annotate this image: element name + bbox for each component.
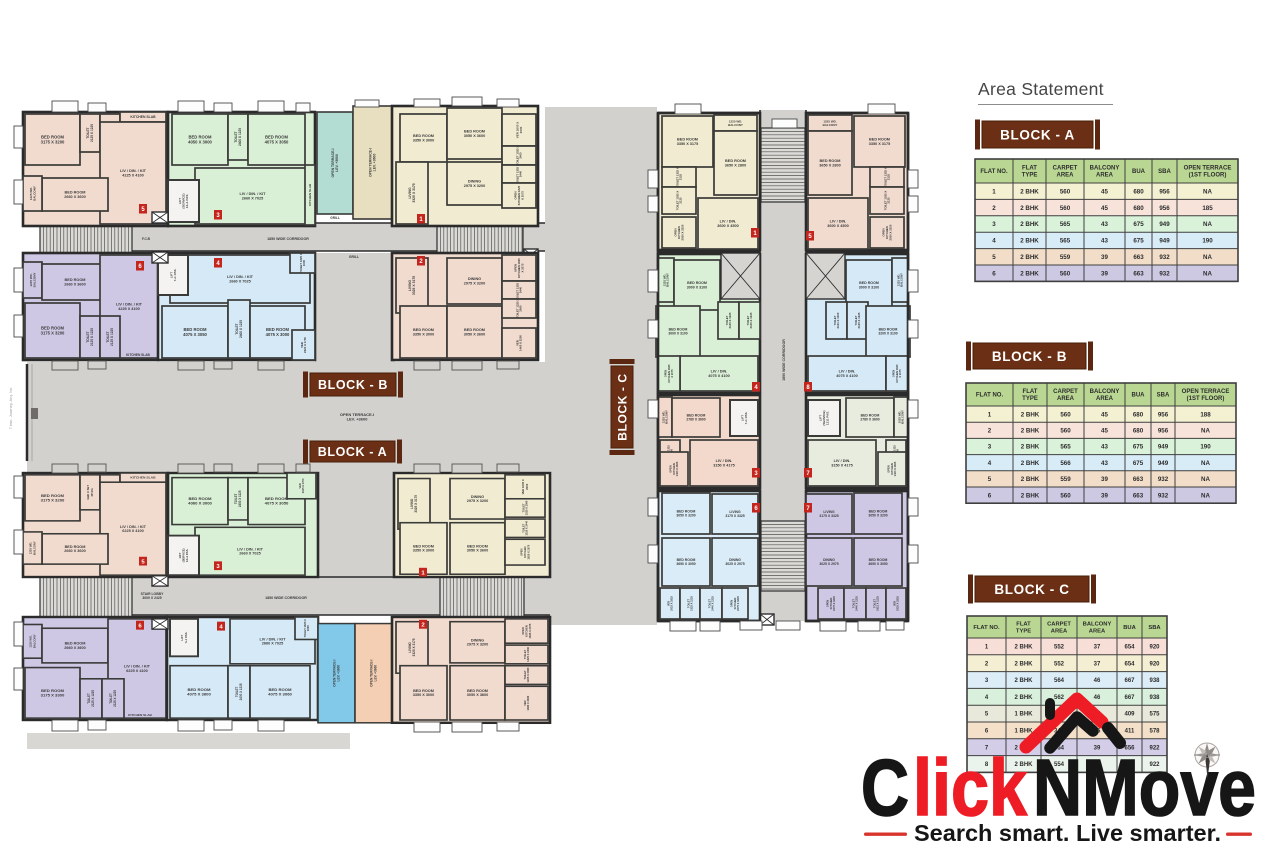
svg-text:6225 X 4100: 6225 X 4100	[122, 529, 143, 533]
svg-text:GRILL: GRILL	[349, 255, 359, 259]
svg-text:KITCHEN SLAB: KITCHEN SLAB	[128, 713, 152, 717]
svg-text:2 BHK: 2 BHK	[1020, 221, 1039, 228]
svg-text:654: 654	[1124, 645, 1135, 651]
svg-text:BALCONY: BALCONY	[1090, 389, 1120, 395]
svg-text:3150 X 4175: 3150 X 4175	[713, 464, 735, 468]
svg-text:BALCONY: BALCONY	[728, 123, 743, 127]
svg-text:1460 X 2825: 1460 X 2825	[675, 461, 679, 476]
svg-text:2660 X 7025: 2660 X 7025	[239, 552, 260, 556]
svg-text:6: 6	[992, 270, 996, 277]
svg-text:NA: NA	[1201, 492, 1210, 499]
svg-text:BED ROOM: BED ROOM	[464, 130, 485, 134]
svg-text:TYPE: TYPE	[1022, 173, 1038, 179]
svg-text:2400 X 1225: 2400 X 1225	[239, 320, 243, 338]
svg-text:578: 578	[1149, 729, 1160, 735]
svg-text:SBA: SBA	[1157, 393, 1170, 399]
svg-text:3200 X 3100: 3200 X 3100	[878, 332, 897, 336]
svg-text:45: 45	[1101, 411, 1108, 418]
svg-text:1: 1	[992, 188, 996, 195]
svg-text:4075 X 4100: 4075 X 4100	[836, 374, 858, 378]
svg-text:4060 X 3000: 4060 X 3000	[188, 501, 212, 506]
svg-text:680: 680	[1133, 205, 1144, 212]
svg-text:OPEN TERRACE: OPEN TERRACE	[1184, 166, 1232, 172]
svg-text:BED ROOM: BED ROOM	[65, 191, 86, 195]
svg-text:NA: NA	[1201, 476, 1210, 483]
svg-text:663: 663	[1133, 270, 1144, 277]
svg-text:3325 X 3175: 3325 X 3175	[412, 638, 416, 656]
svg-text:5: 5	[992, 254, 996, 261]
svg-text:BLOCK - A: BLOCK - A	[318, 445, 388, 459]
svg-text:560: 560	[1060, 492, 1071, 499]
svg-text:560: 560	[1060, 270, 1071, 277]
svg-text:938: 938	[1149, 678, 1160, 684]
svg-text:1325 X 2060: 1325 X 2060	[525, 500, 529, 515]
svg-text:LIV / DIN. / KIT: LIV / DIN. / KIT	[227, 275, 254, 279]
svg-text:2660 X 3600: 2660 X 3600	[64, 283, 86, 287]
svg-text:956: 956	[1158, 428, 1169, 435]
svg-text:BED ROOM: BED ROOM	[820, 159, 841, 163]
svg-text:5: 5	[988, 476, 992, 483]
svg-text:LEV. +3600: LEV. +3600	[374, 665, 378, 682]
svg-text:2440: 2440	[519, 170, 523, 177]
svg-text:3350 X 3000: 3350 X 3000	[413, 693, 435, 697]
svg-text:3350 X 3000: 3350 X 3000	[413, 139, 435, 143]
svg-text:FLAT NO.: FLAT NO.	[973, 625, 1000, 631]
svg-text:409: 409	[1124, 712, 1135, 718]
svg-text:2780 X 3600: 2780 X 3600	[686, 418, 705, 422]
svg-text:2125: 2125	[887, 173, 891, 180]
svg-text:2 BHK: 2 BHK	[1014, 695, 1033, 701]
svg-text:OPEN TERRACE: OPEN TERRACE	[1182, 389, 1230, 395]
svg-text:2125 X 1225: 2125 X 1225	[728, 312, 732, 328]
svg-text:lick: lick	[913, 743, 1027, 832]
svg-text:2 BHK: 2 BHK	[1021, 428, 1040, 435]
svg-text:3150 X 4175: 3150 X 4175	[831, 464, 853, 468]
svg-text:560: 560	[1060, 188, 1071, 195]
svg-text:BALCONY: BALCONY	[666, 273, 670, 287]
svg-text:552: 552	[1054, 645, 1065, 651]
svg-text:6: 6	[988, 492, 992, 499]
svg-text:2660 X 3600: 2660 X 3600	[64, 195, 86, 199]
svg-text:2 BHK: 2 BHK	[1020, 205, 1039, 212]
svg-text:LIV / DIN. / KIT: LIV / DIN. / KIT	[120, 169, 147, 173]
svg-text:2050 X 2250: 2050 X 2250	[888, 224, 892, 240]
svg-text:2125: 2125	[679, 173, 683, 180]
svg-text:3175 X 3300: 3175 X 3300	[41, 693, 65, 698]
svg-text:7+1 PAS.: 7+1 PAS.	[184, 632, 188, 644]
svg-text:956: 956	[1159, 205, 1170, 212]
svg-text:956: 956	[1159, 188, 1170, 195]
svg-text:667: 667	[1124, 695, 1135, 701]
svg-text:4075 X 3000: 4075 X 3000	[266, 332, 290, 337]
svg-text:3: 3	[992, 221, 996, 228]
svg-text:BALCONY: BALCONY	[900, 273, 904, 287]
svg-text:1225 X 2060: 1225 X 2060	[526, 667, 530, 682]
svg-text:FLAT NO.: FLAT NO.	[976, 393, 1004, 399]
svg-text:3600 X 4500: 3600 X 4500	[827, 224, 849, 228]
svg-text:2660 X 7025: 2660 X 7025	[262, 642, 284, 646]
svg-text:Search smart. Live smarter.: Search smart. Live smarter.	[914, 820, 1221, 846]
svg-text:BUA: BUA	[1132, 393, 1146, 399]
svg-text:1850 WIDE CORRIDOOR: 1850 WIDE CORRIDOOR	[265, 596, 307, 600]
svg-text:1325 X 2440: 1325 X 2440	[526, 647, 530, 662]
svg-text:LIV / DIN.: LIV / DIN.	[720, 220, 737, 224]
svg-text:BLOCK - B: BLOCK - B	[992, 349, 1067, 364]
svg-text:4075 X 3050: 4075 X 3050	[183, 332, 207, 337]
svg-text:2125 X 1225: 2125 X 1225	[110, 328, 114, 346]
svg-text:3050 X 3600: 3050 X 3600	[467, 693, 489, 697]
svg-text:3000 X 3100: 3000 X 3100	[859, 285, 879, 289]
svg-text:2660 X 7025: 2660 X 7025	[242, 197, 264, 201]
svg-text:LEV. +3600: LEV. +3600	[337, 665, 341, 682]
svg-text:2050 X 2250: 2050 X 2250	[680, 224, 684, 240]
svg-text:2400: 2400	[519, 152, 523, 159]
svg-text:TYPE: TYPE	[1016, 628, 1031, 634]
svg-text:3050 X 3200: 3050 X 3200	[676, 514, 695, 518]
svg-text:NA: NA	[1203, 221, 1212, 228]
svg-text:949: 949	[1159, 238, 1170, 245]
svg-text:949: 949	[1158, 460, 1169, 467]
svg-text:2 BHK: 2 BHK	[1021, 460, 1040, 467]
svg-text:BALCONY: BALCONY	[32, 186, 36, 201]
svg-text:2125: 2125	[679, 197, 683, 204]
svg-text:46: 46	[1094, 695, 1101, 701]
svg-text:CARPET: CARPET	[1053, 389, 1078, 395]
svg-text:2 BHK: 2 BHK	[1021, 444, 1040, 451]
svg-text:KITCHEN SLAB: KITCHEN SLAB	[130, 115, 156, 119]
svg-text:AREA: AREA	[1096, 396, 1114, 402]
svg-text:NA: NA	[1203, 254, 1212, 261]
svg-text:1625 X 2575: 1625 X 2575	[526, 544, 530, 559]
svg-text:2125: 2125	[887, 197, 891, 204]
svg-text:2125 X 1225: 2125 X 1225	[90, 328, 94, 346]
svg-text:3050 X 3600: 3050 X 3600	[464, 134, 486, 138]
svg-text:2025 X 1700: 2025 X 1700	[301, 478, 305, 493]
svg-text:2025 X 1825: 2025 X 1825	[670, 596, 674, 611]
svg-text:4225 X 4100: 4225 X 4100	[122, 174, 144, 178]
svg-text:2975 X 3200: 2975 X 3200	[464, 282, 486, 286]
svg-text:4075 X 3050: 4075 X 3050	[265, 501, 289, 506]
svg-text:BUA: BUA	[1123, 625, 1136, 631]
svg-text:3000 X 3100: 3000 X 3100	[668, 332, 687, 336]
svg-text:2400 X 1225: 2400 X 1225	[238, 128, 242, 146]
svg-text:NA: NA	[1203, 270, 1212, 277]
svg-text:1325 X 1225: 1325 X 1225	[690, 596, 694, 611]
svg-text:FLAT: FLAT	[1016, 622, 1031, 628]
svg-text:43: 43	[1101, 238, 1108, 245]
svg-text:BED ROOM: BED ROOM	[869, 138, 890, 142]
svg-text:188: 188	[1200, 411, 1211, 418]
svg-text:2400 X 1225: 2400 X 1225	[239, 683, 243, 700]
svg-text:2P RG: 2P RG	[90, 487, 94, 496]
svg-text:2400 X 1225: 2400 X 1225	[238, 490, 242, 507]
svg-text:BALCONY: BALCONY	[32, 273, 36, 288]
svg-text:1460 X 3360: 1460 X 3360	[526, 695, 530, 710]
svg-text:X 2575: X 2575	[520, 191, 524, 200]
svg-text:LIV / DIN.: LIV / DIN.	[711, 370, 728, 374]
svg-text:LEV. +3600: LEV. +3600	[373, 154, 377, 172]
svg-text:6225 X 4100: 6225 X 4100	[126, 669, 148, 673]
svg-text:2125 X 1225: 2125 X 1225	[113, 690, 117, 707]
svg-text:667: 667	[1124, 678, 1135, 684]
svg-text:NA: NA	[1203, 188, 1212, 195]
svg-text:12+1 PAS.: 12+1 PAS.	[185, 194, 189, 209]
svg-text:2 BHK: 2 BHK	[1021, 476, 1040, 483]
svg-text:BLOCK - A: BLOCK - A	[1000, 127, 1075, 142]
svg-text:AREA: AREA	[1057, 396, 1075, 402]
svg-text:BED ROOM: BED ROOM	[413, 328, 434, 332]
svg-text:NA: NA	[1201, 428, 1210, 435]
svg-text:1 BHK: 1 BHK	[1014, 712, 1033, 718]
svg-text:411: 411	[1125, 729, 1135, 735]
svg-text:3025 X 2975: 3025 X 2975	[725, 562, 744, 566]
svg-text:575: 575	[1149, 712, 1160, 718]
svg-text:2121 X 1000: 2121 X 1000	[836, 312, 840, 328]
svg-text:2125 X 1225: 2125 X 1225	[91, 690, 95, 707]
svg-text:932: 932	[1159, 254, 1170, 261]
svg-text:190: 190	[1200, 444, 1211, 451]
svg-text:1460 X 2200: 1460 X 2200	[519, 335, 523, 351]
svg-text:GRILL: GRILL	[330, 216, 340, 220]
svg-text:BED ROOM: BED ROOM	[65, 278, 86, 282]
svg-text:2440 X 1325: 2440 X 1325	[855, 596, 859, 611]
svg-text:4075 X 3600: 4075 X 3600	[187, 692, 211, 697]
svg-text:3350 X 3000: 3350 X 3000	[413, 333, 435, 337]
svg-text:2780 X 3600: 2780 X 3600	[860, 418, 879, 422]
svg-text:3175 X 3325: 3175 X 3325	[819, 514, 838, 518]
svg-text:2: 2	[421, 623, 424, 629]
svg-text:1325 X 2440: 1325 X 2440	[525, 520, 529, 535]
svg-text:552: 552	[1054, 661, 1065, 667]
svg-text:3: 3	[988, 444, 992, 451]
svg-text:BUA: BUA	[1132, 169, 1146, 175]
svg-text:43: 43	[1101, 444, 1108, 451]
svg-text:680: 680	[1133, 188, 1144, 195]
svg-text:2 BHK: 2 BHK	[1021, 411, 1040, 418]
svg-text:46: 46	[1094, 678, 1101, 684]
svg-text:STAIR LOBBY3000 X 2425: STAIR LOBBY3000 X 2425	[141, 592, 164, 600]
svg-text:2975 X 3200: 2975 X 3200	[467, 643, 489, 647]
svg-text:680: 680	[1133, 428, 1144, 435]
svg-text:BLOCK - B: BLOCK - B	[318, 378, 388, 392]
svg-text:2 BHK: 2 BHK	[1014, 661, 1033, 667]
svg-text:37: 37	[1094, 661, 1101, 667]
svg-text:BALCONY: BALCONY	[665, 410, 669, 424]
svg-text:2: 2	[988, 428, 992, 435]
svg-text:3650 X 2800: 3650 X 2800	[819, 164, 841, 168]
svg-text:3325 X 3175: 3325 X 3175	[414, 495, 418, 513]
svg-text:(1ST FLOOR): (1ST FLOOR)	[1187, 396, 1225, 402]
svg-text:BLOCK - C: BLOCK - C	[615, 373, 629, 440]
svg-text:4075 X 3060: 4075 X 3060	[268, 692, 292, 697]
svg-text:DINING: DINING	[468, 180, 481, 184]
svg-text:BED ROOM: BED ROOM	[413, 134, 434, 138]
svg-text:2125 X 1025: 2125 X 1025	[749, 312, 753, 328]
svg-text:2075 X 1825: 2075 X 1825	[736, 596, 740, 611]
svg-text:3325 X 3175: 3325 X 3175	[412, 183, 416, 202]
svg-text:2660 X 3600: 2660 X 3600	[64, 646, 86, 650]
svg-text:949: 949	[1158, 444, 1169, 451]
svg-text:956: 956	[1158, 411, 1169, 418]
svg-text:1850 WIDE CORRIDOOR: 1850 WIDE CORRIDOOR	[782, 339, 786, 381]
svg-text:3000 X 3100: 3000 X 3100	[687, 285, 707, 289]
svg-text:3350 X 3175: 3350 X 3175	[677, 142, 699, 146]
svg-text:NMove: NMove	[1033, 743, 1256, 832]
svg-text:2975 X 3200: 2975 X 3200	[467, 499, 488, 503]
svg-text:4: 4	[992, 238, 996, 245]
svg-text:7+1 PAS.: 7+1 PAS.	[173, 268, 177, 281]
svg-text:X 2075: X 2075	[670, 369, 674, 378]
svg-text:3175 X 3325: 3175 X 3325	[725, 514, 744, 518]
svg-text:39: 39	[1101, 254, 1108, 261]
svg-text:43: 43	[1101, 221, 1108, 228]
svg-text:566: 566	[1060, 460, 1071, 467]
svg-text:2000: 2000	[525, 483, 529, 490]
svg-text:185: 185	[1202, 205, 1213, 212]
svg-text:X 2575: X 2575	[520, 263, 524, 272]
svg-text:BALCONY: BALCONY	[32, 541, 36, 555]
svg-text:F.C.B: F.C.B	[142, 237, 151, 241]
svg-text:2125 X 1225: 2125 X 1225	[857, 312, 861, 328]
svg-text:1000: 1000	[306, 625, 310, 631]
svg-text:565: 565	[1060, 238, 1071, 245]
svg-text:BED ROOM: BED ROOM	[725, 159, 746, 163]
svg-text:675: 675	[1133, 460, 1144, 467]
svg-text:3650 X 3050: 3650 X 3050	[868, 562, 887, 566]
svg-text:3175 X 3200: 3175 X 3200	[41, 498, 65, 503]
svg-text:BALCONY: BALCONY	[901, 410, 905, 424]
svg-text:NA: NA	[1201, 460, 1210, 467]
svg-text:CARPET: CARPET	[1053, 166, 1078, 172]
svg-text:3650 X 2800: 3650 X 2800	[725, 164, 747, 168]
svg-text:3050 X 3200: 3050 X 3200	[868, 514, 887, 518]
svg-text:564: 564	[1054, 678, 1065, 684]
svg-text:2 BHK: 2 BHK	[1014, 645, 1033, 651]
svg-text:949: 949	[1159, 221, 1170, 228]
svg-text:3600 X 4500: 3600 X 4500	[717, 224, 739, 228]
svg-text:3175 X 3200: 3175 X 3200	[41, 139, 65, 144]
svg-text:39: 39	[1101, 476, 1108, 483]
svg-text:559: 559	[1060, 254, 1071, 261]
svg-text:Area Statement: Area Statement	[978, 79, 1104, 99]
svg-text:3650 X 3050: 3650 X 3050	[676, 562, 695, 566]
svg-text:920: 920	[1149, 645, 1160, 651]
svg-text:4075 X 3050: 4075 X 3050	[265, 139, 289, 144]
svg-text:920: 920	[1149, 661, 1160, 667]
svg-text:1000: 1000	[302, 259, 306, 266]
svg-text:932: 932	[1158, 476, 1169, 483]
svg-text:4050 X 3000: 4050 X 3000	[188, 139, 212, 144]
svg-text:1460 X 2825: 1460 X 2825	[893, 461, 897, 476]
svg-text:45: 45	[1101, 188, 1108, 195]
svg-text:2660 X 7025: 2660 X 7025	[229, 280, 251, 284]
svg-text:2 BHK: 2 BHK	[1021, 492, 1040, 499]
svg-text:LEV. +3600: LEV. +3600	[335, 154, 339, 172]
svg-text:1 BHK: 1 BHK	[1014, 729, 1033, 735]
svg-text:2 BHK: 2 BHK	[1020, 238, 1039, 245]
svg-text:4075 X 4100: 4075 X 4100	[708, 374, 730, 378]
svg-text:43: 43	[1101, 460, 1108, 467]
svg-text:4225 X 4100: 4225 X 4100	[118, 307, 140, 311]
svg-text:KITCHEN SLAB: KITCHEN SLAB	[126, 353, 150, 357]
svg-text:DINING: DINING	[468, 277, 481, 281]
svg-text:560: 560	[1060, 205, 1071, 212]
svg-text:KITCHEN SLAB: KITCHEN SLAB	[308, 183, 312, 206]
svg-text:AREA: AREA	[1089, 628, 1106, 634]
svg-text:BALCONY: BALCONY	[1090, 166, 1120, 172]
svg-text:CARPET: CARPET	[1047, 622, 1071, 628]
svg-text:559: 559	[1060, 476, 1071, 483]
svg-text:2440 X 1325: 2440 X 1325	[711, 596, 715, 611]
svg-text:2224 X 1700: 2224 X 1700	[303, 337, 307, 353]
svg-text:BALCONY: BALCONY	[823, 123, 838, 127]
svg-text:TYPE: TYPE	[1022, 396, 1038, 402]
svg-text:39: 39	[1101, 492, 1108, 499]
svg-text:37: 37	[1094, 645, 1101, 651]
svg-text:663: 663	[1133, 254, 1144, 261]
svg-text:675: 675	[1133, 221, 1144, 228]
svg-text:39: 39	[1101, 270, 1108, 277]
svg-text:45: 45	[1101, 428, 1108, 435]
svg-text:675: 675	[1133, 444, 1144, 451]
svg-text:654: 654	[1124, 661, 1135, 667]
svg-text:565: 565	[1060, 221, 1071, 228]
svg-text:(1ST FLOOR): (1ST FLOOR)	[1189, 173, 1227, 179]
svg-text:2075 X 1825: 2075 X 1825	[832, 596, 836, 611]
svg-text:2125 X 1225: 2125 X 1225	[90, 124, 94, 142]
svg-text:FLAT NO.: FLAT NO.	[980, 169, 1008, 175]
svg-text:3: 3	[216, 564, 219, 570]
svg-text:LIV / DIN. / KIT: LIV / DIN. / KIT	[240, 192, 267, 196]
svg-text:45: 45	[1101, 205, 1108, 212]
svg-text:C: C	[861, 743, 909, 832]
svg-text:2: 2	[992, 205, 996, 212]
svg-text:2060: 2060	[519, 305, 523, 312]
svg-text:2 BHK: 2 BHK	[1020, 270, 1039, 277]
svg-text:2 BHK: 2 BHK	[1020, 254, 1039, 261]
svg-text:AREA: AREA	[1051, 628, 1068, 634]
svg-text:BALCONY: BALCONY	[1083, 622, 1112, 628]
svg-text:3350 X 3000: 3350 X 3000	[413, 549, 434, 553]
svg-text:LIV / DIN. / KIT: LIV / DIN. / KIT	[116, 303, 143, 307]
svg-text:938: 938	[1149, 695, 1160, 701]
svg-text:3050 X 3600: 3050 X 3600	[467, 549, 488, 553]
svg-text:2 BHK: 2 BHK	[1014, 678, 1033, 684]
svg-text:675: 675	[1133, 238, 1144, 245]
svg-text:LIV / DIN.: LIV / DIN.	[830, 220, 847, 224]
svg-text:3325 X 3175: 3325 X 3175	[412, 276, 416, 295]
svg-text:12+1 PAS.: 12+1 PAS.	[185, 549, 189, 562]
svg-text:7+1 PAS.: 7+1 PAS.	[744, 411, 748, 424]
svg-text:1625 X 2075: 1625 X 2075	[528, 623, 532, 638]
svg-text:LIV / DIN.: LIV / DIN.	[716, 459, 733, 463]
svg-text:KITCHEN SLAB: KITCHEN SLAB	[130, 476, 156, 480]
svg-text:7 twn. Journey. Arq. No.: 7 twn. Journey. Arq. No.	[8, 387, 13, 429]
svg-text:BALCONY: BALCONY	[32, 634, 36, 648]
svg-text:FLAT: FLAT	[1022, 166, 1037, 172]
svg-text:2660 X 3600: 2660 X 3600	[64, 549, 85, 553]
svg-text:2000: 2000	[519, 126, 523, 133]
svg-text:BED ROOM: BED ROOM	[464, 328, 485, 332]
svg-text:BLOCK - C: BLOCK - C	[994, 582, 1069, 597]
svg-text:680: 680	[1133, 411, 1144, 418]
svg-text:3050 X 3600: 3050 X 3600	[464, 333, 486, 337]
svg-text:2025 X 1825: 2025 X 1825	[896, 596, 900, 611]
svg-text:3175 X 3200: 3175 X 3200	[41, 330, 65, 335]
svg-text:1621 X 1225: 1621 X 1225	[876, 596, 880, 611]
svg-text:560: 560	[1060, 428, 1071, 435]
svg-text:663: 663	[1133, 492, 1144, 499]
